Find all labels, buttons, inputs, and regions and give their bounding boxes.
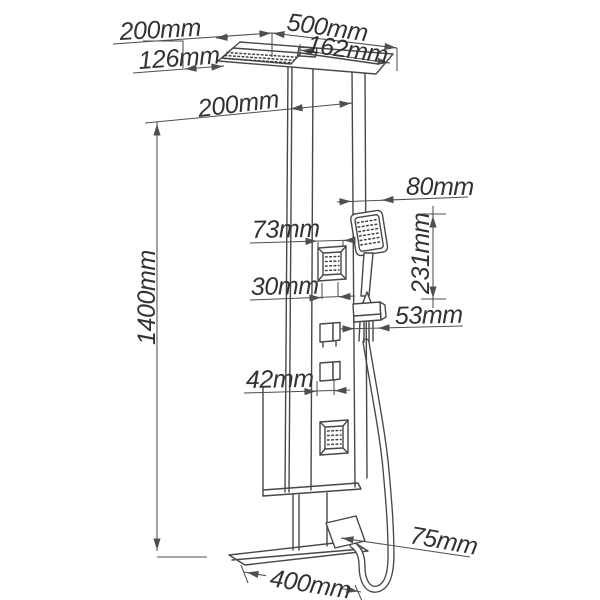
label-base-width: 400mm [268, 564, 353, 600]
hand-shower-head [350, 210, 388, 256]
shower-panel-diagram: 200mm 500mm 162mm 126mm 200mm 80mm 73mm … [0, 0, 600, 600]
body-jet-upper [318, 246, 346, 281]
control-knob-upper [320, 323, 340, 348]
label-panel-width: 200mm [195, 85, 280, 123]
bottom-support-column [293, 493, 327, 550]
hand-shower-handle [361, 253, 373, 296]
shower-hose [353, 342, 391, 589]
label-arm-offset: 200mm [118, 14, 202, 46]
label-hand-shower-width: 80mm [406, 173, 474, 201]
label-jet-depth: 30mm [251, 272, 319, 301]
label-jet-width: 73mm [252, 215, 320, 244]
label-holder-width: 53mm [395, 301, 463, 330]
label-wall-clearance: 126mm [137, 41, 220, 75]
hand-shower [350, 210, 388, 342]
technical-drawing-page: 200mm 500mm 162mm 126mm 200mm 80mm 73mm … [0, 0, 600, 600]
label-knob-width: 42mm [246, 365, 314, 394]
label-panel-height: 1400mm [133, 250, 161, 345]
dim-panel-height [157, 122, 207, 557]
label-hand-shower-height: 231mm [407, 213, 435, 295]
control-knob-lower [320, 362, 340, 382]
hand-shower-holder [353, 292, 386, 322]
body-jet-lower [320, 420, 348, 455]
label-spout-depth: 75mm [408, 521, 480, 560]
panel-bottom-shelf [263, 483, 361, 496]
